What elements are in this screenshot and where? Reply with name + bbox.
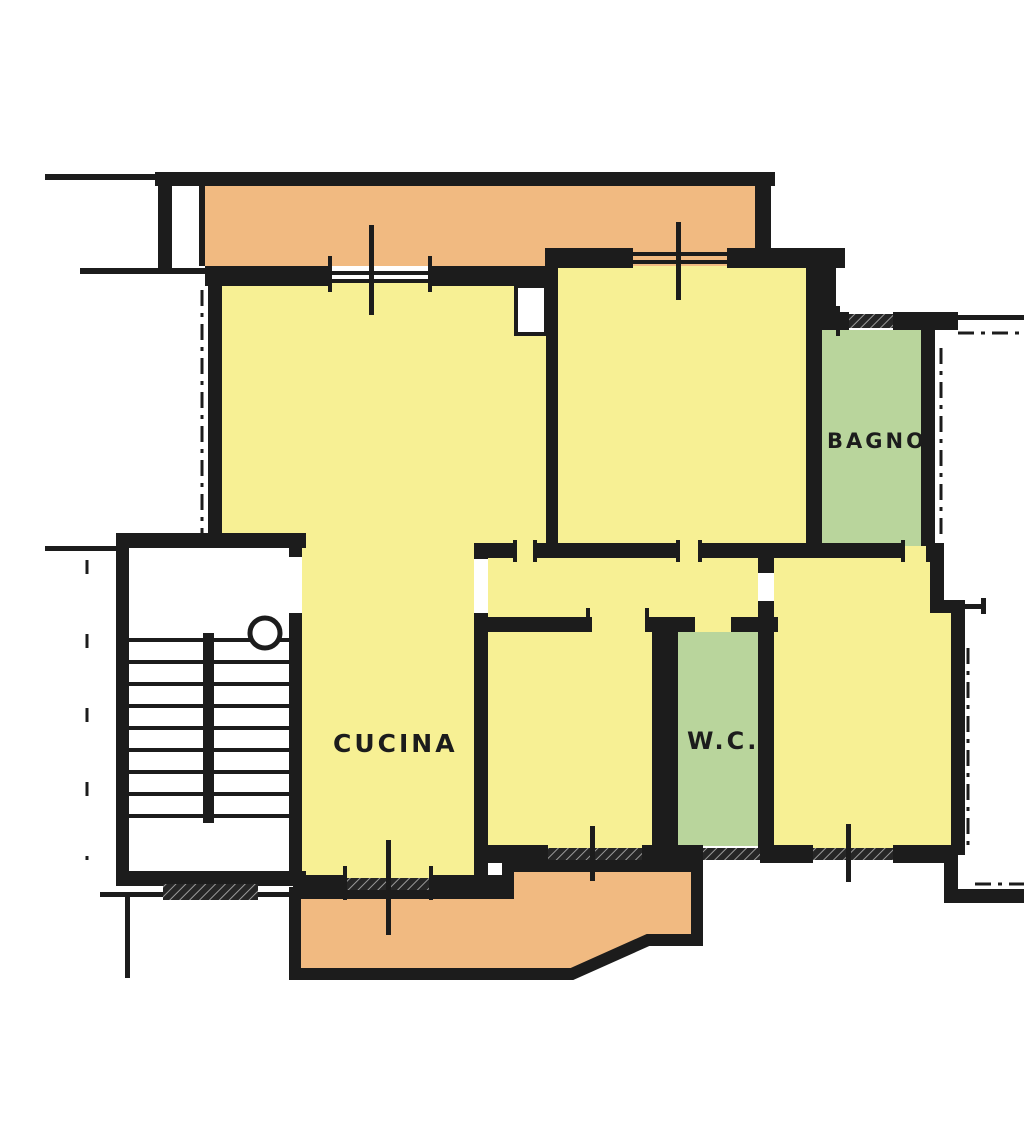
staircase [129,618,289,900]
living-kitchen-upper [218,283,548,546]
wall-kitchen-bottom-b [432,875,508,893]
door-jamb [645,608,649,622]
left-thin-line [45,546,116,551]
window-axis-tick [386,840,391,935]
kitchen-label: CUCINA [333,729,458,758]
bedroom-right-door-opening [758,573,774,601]
kitchen-lower [298,546,486,878]
window-jamb [428,256,432,292]
wall-corridor-bottom-a [474,617,592,632]
wall-bottom-a [474,845,548,863]
wall-living-top-a [205,266,332,286]
floor-plan-page: CUCINA BAGNO W.C. [0,0,1024,1129]
window-jamb [836,306,840,336]
window-axis-tick [590,826,595,881]
building-entrance-door [163,884,258,900]
door-jamb [586,608,590,622]
window-jamb [429,866,433,900]
window-living-line [332,271,428,275]
wall-living-left [208,266,222,546]
wall-bedroom-right [806,248,822,546]
wall-balcony-left [158,172,172,268]
jog-tick [965,604,983,609]
wall-bottomright-horiz [944,889,1024,903]
door-jamb [513,540,517,562]
window-axis-tick [846,824,851,882]
wall-bottom-b [642,845,703,863]
bedroom-small [486,632,652,850]
door-jamb [533,540,537,562]
window-bathroom [849,314,893,328]
window-living-line [332,279,428,283]
wall-niche [516,286,546,334]
wall-kitchen-bottom-a [293,875,345,893]
bottomleft-thin-vert [125,892,130,978]
wall-bedroom-top-a [545,248,633,268]
stair-direction-marker [250,618,280,648]
wall-topright-thin [955,315,1024,320]
window-jamb [328,256,332,292]
window-bedroom-right [813,848,893,860]
bedroom-middle [556,266,818,546]
wall-stair-top [116,533,306,548]
stair-stringer [203,633,214,823]
wall-bedroomright-lower [951,600,965,855]
window-wc [703,848,760,860]
wall-corridor-top-a [478,543,517,558]
wall-bedroom-top-b [727,248,845,268]
window-jamb [343,866,347,900]
wall-living-top-b [428,266,555,286]
bottomleft-thin-b [258,892,298,897]
floor-plan-drawing: CUCINA BAGNO W.C. [0,0,1024,1129]
wall-top-left-thin [45,174,155,180]
wall-stair-left [116,533,129,886]
wall-wc-left [652,617,678,846]
wall-top [155,172,775,186]
balcony-divider [199,186,205,266]
bathroom-label: BAGNO [827,429,927,453]
window-axis-tick [676,222,681,300]
wall-bottom-c [760,845,813,863]
door-jamb [926,540,930,562]
door-jamb [901,540,905,562]
wc-label: W.C. [687,727,759,755]
kitchen-corridor-door-opening [474,559,488,613]
window-axis-tick [369,225,374,315]
wall-bath-top-b [893,312,958,330]
door-jamb [676,540,680,562]
bottomleft-thin-a [100,892,163,897]
wall-corridor-top-c [698,543,905,558]
wall-stair-bottom [116,871,306,886]
wall-bath-top-a [820,312,849,330]
bedroom-right [774,546,951,852]
wall-left-thin-ext [80,268,205,274]
entrance-door-opening [289,557,302,613]
jog-tick-cap [981,598,986,614]
door-jamb [698,540,702,562]
